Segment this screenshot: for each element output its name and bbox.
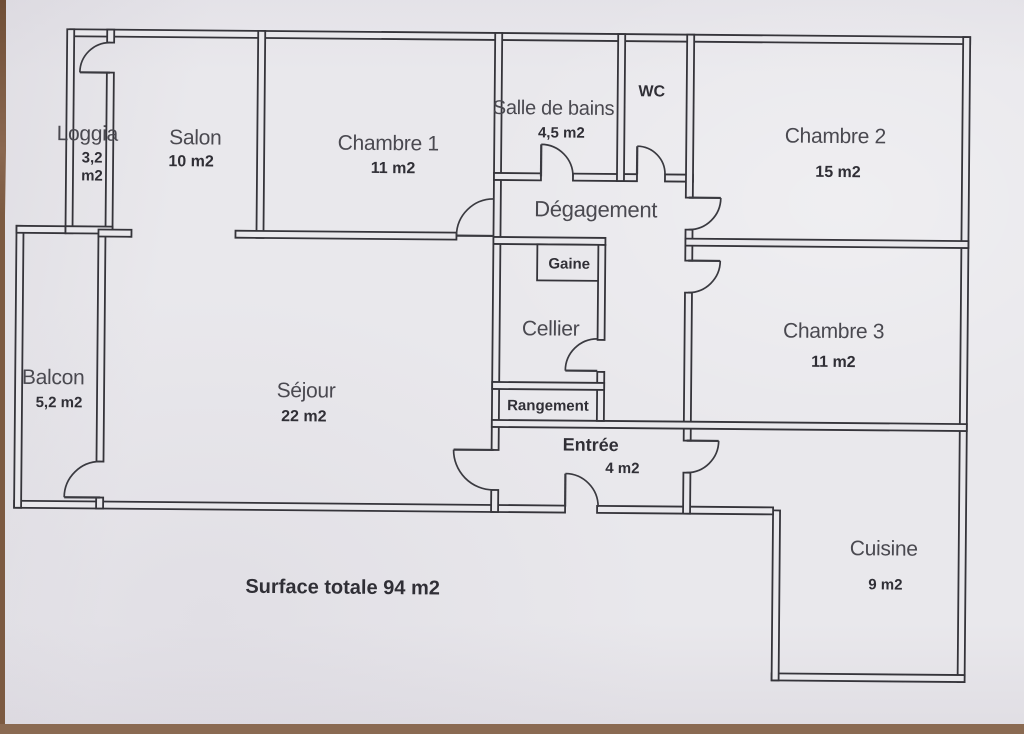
wall-cuisine-left (772, 510, 780, 680)
wall-687-d (683, 473, 690, 514)
wall-cellier-rangement-divider (492, 382, 604, 390)
door-loggia (80, 42, 110, 72)
door-salle-de-bains (541, 144, 573, 176)
room-label-chambre3: Chambre 3 (783, 319, 884, 343)
door-sejour-entree (453, 450, 493, 490)
door-entree-east (686, 441, 718, 473)
room-area-loggia-2: m2 (81, 167, 103, 184)
wall-top (70, 29, 970, 44)
room-label-salon: Salon (169, 126, 221, 149)
wall-sejour-left (96, 234, 105, 462)
wall-sejour-top-stub (98, 230, 131, 237)
wall-cuisine-bottom (772, 673, 965, 682)
room-area-chambre2: 15 m2 (815, 164, 861, 181)
wall-687-a (686, 35, 694, 198)
wall-loggia-right-b (105, 73, 113, 234)
room-label-balcon: Balcon (22, 366, 85, 390)
wall-sdb-wc-divider (617, 34, 625, 181)
room-label-rangement: Rangement (507, 397, 589, 415)
room-label-gaine: Gaine (548, 255, 590, 272)
room-area-chambre1: 11 m2 (371, 160, 416, 177)
wall-salon-ch1-divider (256, 31, 265, 238)
door-cellier (565, 339, 597, 371)
wall-sejour-left-stub (96, 497, 103, 508)
room-label-entree: Entrée (563, 435, 619, 455)
door-chambre1 (456, 199, 493, 236)
room-label-degagement: Dégagement (534, 196, 657, 222)
door-chambre2 (689, 198, 721, 230)
door-chambre3 (688, 261, 720, 293)
wall-balcon-top (16, 226, 65, 233)
wall-salon-ch1-bottom (235, 231, 456, 240)
wall-cellier-east-b (597, 372, 604, 421)
wall-ch3-entree-bottom (492, 420, 967, 431)
wall-loggia-right-a (107, 30, 114, 43)
room-area-entree: 4 m2 (605, 460, 639, 477)
wall-687-c (684, 293, 692, 441)
total-surface-note: Surface totale 94 m2 (245, 576, 440, 600)
room-label-cuisine: Cuisine (850, 537, 918, 561)
room-label-wc: WC (638, 83, 665, 100)
wall-central-b (491, 490, 498, 512)
room-area-cuisine: 9 m2 (868, 576, 902, 593)
room-area-salle-de-bains: 4,5 m2 (538, 124, 585, 141)
wall-cellier-east-a (598, 245, 606, 340)
room-area-loggia-1: 3,2 (82, 149, 103, 166)
wall-sdb-bottom-a (494, 173, 541, 180)
room-area-chambre3: 11 m2 (811, 354, 856, 371)
wall-ch2-ch3-divider (685, 239, 968, 248)
room-label-chambre1: Chambre 1 (338, 132, 439, 156)
door-balcon (64, 461, 100, 497)
wall-right (958, 37, 971, 682)
wall-sdb-bottom-b (573, 174, 637, 182)
room-labels: Loggia 3,2 m2 Salon 10 m2 Chambre 1 11 m… (20, 78, 922, 594)
room-label-sejour: Séjour (277, 379, 336, 403)
floor-plan-svg: Loggia 3,2 m2 Salon 10 m2 Chambre 1 11 m… (0, 0, 1024, 729)
room-area-balcon: 5,2 m2 (36, 394, 83, 411)
door-entree-front (565, 474, 598, 507)
room-label-loggia: Loggia (57, 122, 119, 146)
room-area-sejour: 22 m2 (281, 408, 327, 425)
floor-plan: Loggia 3,2 m2 Salon 10 m2 Chambre 1 11 m… (0, 0, 1024, 734)
room-area-salon: 10 m2 (168, 153, 214, 170)
room-label-salle-de-bains: Salle de bains (493, 97, 615, 120)
door-wc (637, 146, 665, 174)
room-label-cellier: Cellier (522, 317, 580, 341)
room-label-chambre2: Chambre 2 (785, 124, 886, 148)
